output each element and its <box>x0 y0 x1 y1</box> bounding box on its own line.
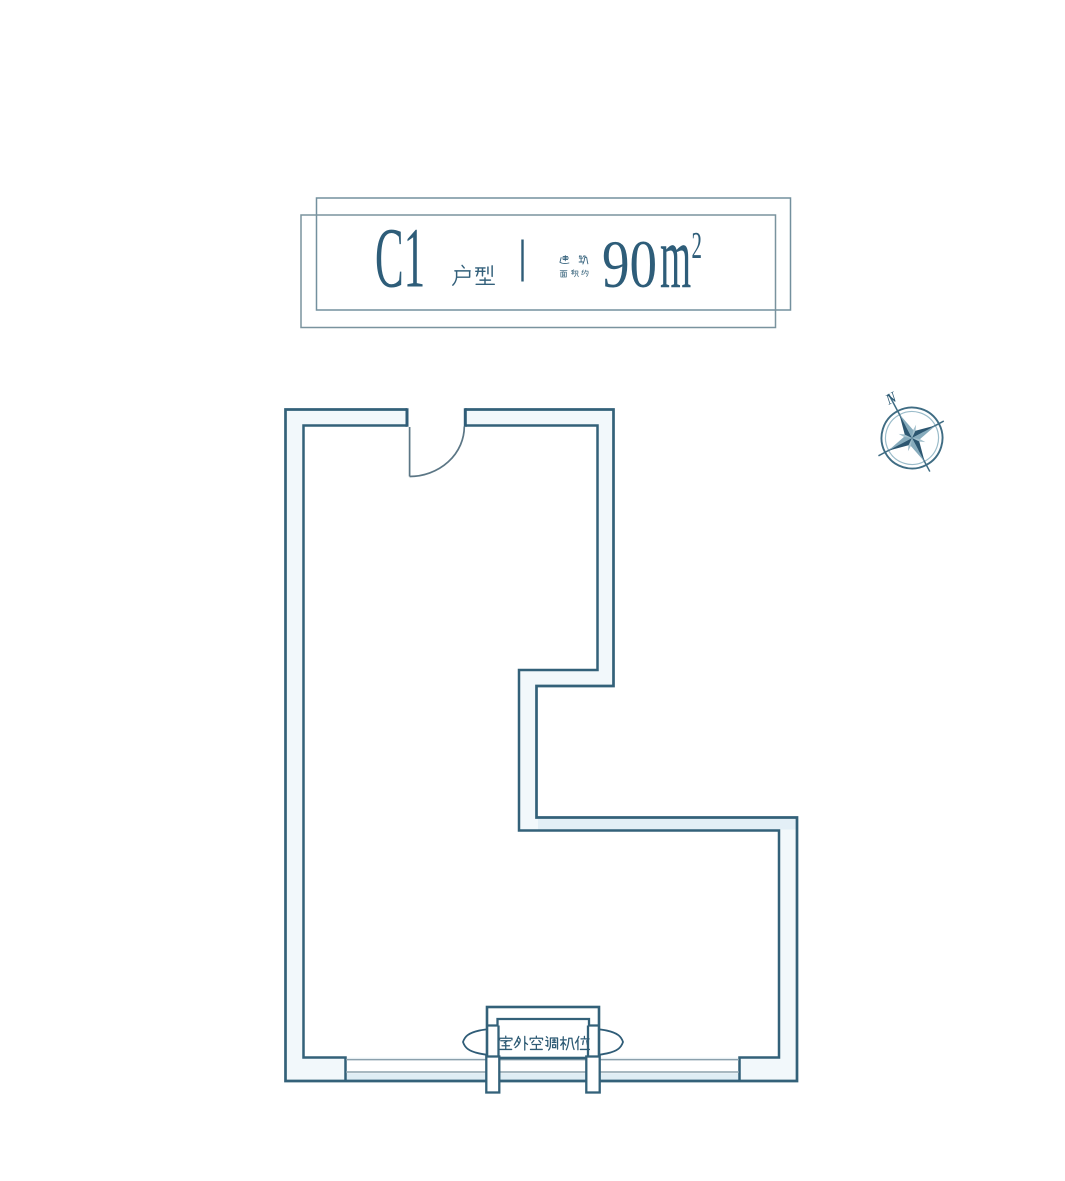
svg-text:90: 90 <box>602 228 657 303</box>
svg-text:N: N <box>882 389 900 409</box>
svg-text:m: m <box>660 208 691 306</box>
svg-text:C1: C1 <box>375 209 425 305</box>
svg-text:2: 2 <box>692 225 702 267</box>
